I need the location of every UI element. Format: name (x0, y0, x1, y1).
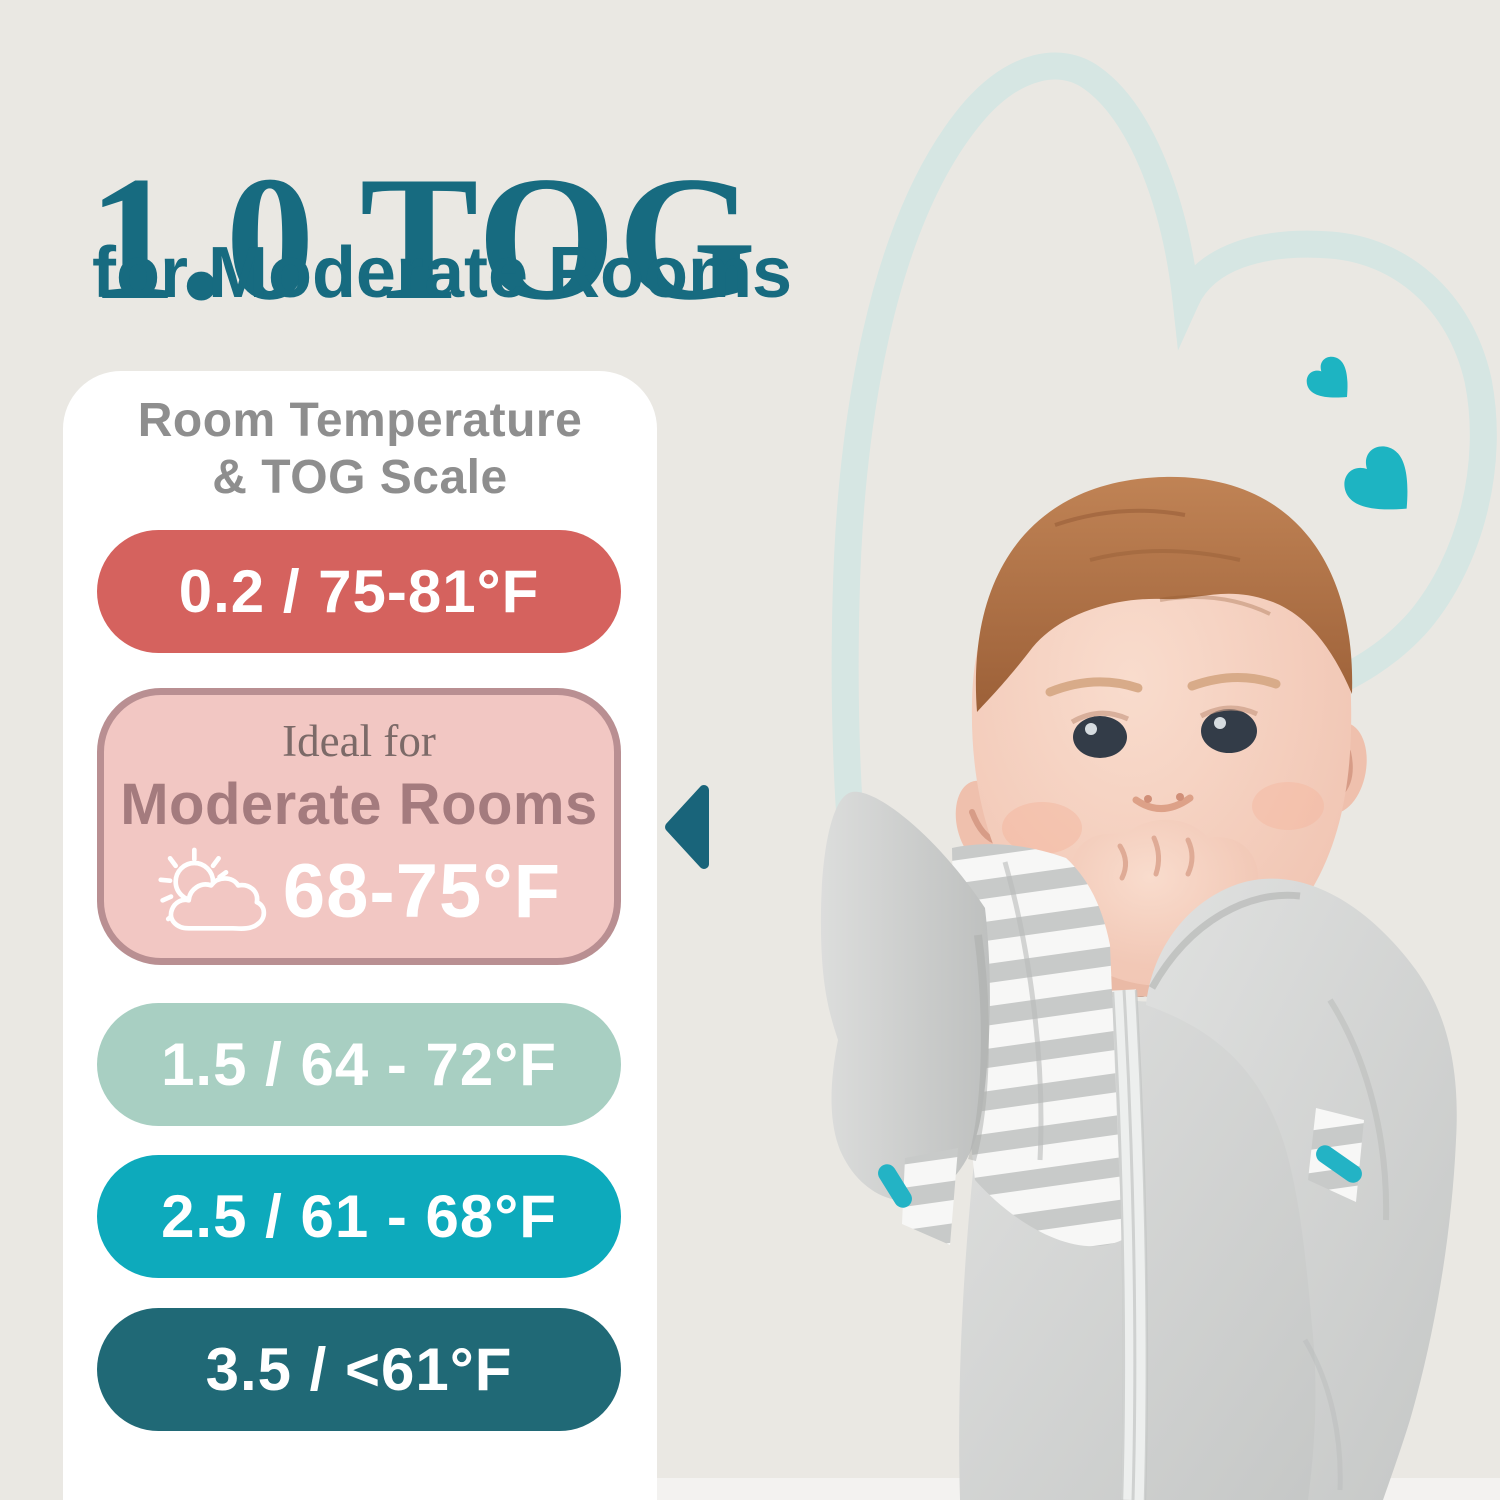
card-heading-line2: & TOG Scale (63, 450, 657, 507)
ideal-room-label: Moderate Rooms (104, 771, 614, 838)
infographic-canvas: 1.0 TOG for Moderate Rooms Room Temperat… (0, 0, 1500, 1500)
tog-row-0-2-label: 0.2 / 75-81°F (179, 557, 540, 626)
tog-scale-card: Room Temperature & TOG Scale 0.2 / 75-81… (63, 371, 657, 1500)
ideal-temp-row: 68-75°F (104, 846, 614, 936)
ideal-intro-label: Ideal for (104, 715, 614, 767)
ideal-temp-label: 68-75°F (283, 848, 561, 935)
card-heading: Room Temperature & TOG Scale (63, 393, 657, 506)
tog-row-3-5: 3.5 / <61°F (97, 1308, 621, 1431)
tog-row-3-5-label: 3.5 / <61°F (206, 1335, 513, 1404)
baby-left-eye (1073, 716, 1127, 758)
left-triangle-arrow-icon (660, 782, 712, 872)
tog-row-2-5-label: 2.5 / 61 - 68°F (161, 1182, 557, 1251)
sun-behind-cloud-icon (157, 846, 269, 936)
small-heart-icon (1302, 352, 1363, 413)
page-subtitle: for Moderate Rooms (92, 232, 892, 314)
tog-row-1-5: 1.5 / 64 - 72°F (97, 1003, 621, 1126)
baby-right-eye (1201, 709, 1257, 753)
tog-row-0-2: 0.2 / 75-81°F (97, 530, 621, 653)
tog-row-1-5-label: 1.5 / 64 - 72°F (161, 1030, 557, 1099)
tog-row-2-5: 2.5 / 61 - 68°F (97, 1155, 621, 1278)
tog-row-ideal: Ideal for Moderate Rooms 6 (97, 688, 621, 965)
baby-photo (820, 440, 1500, 1500)
card-heading-line1: Room Temperature (63, 393, 657, 450)
